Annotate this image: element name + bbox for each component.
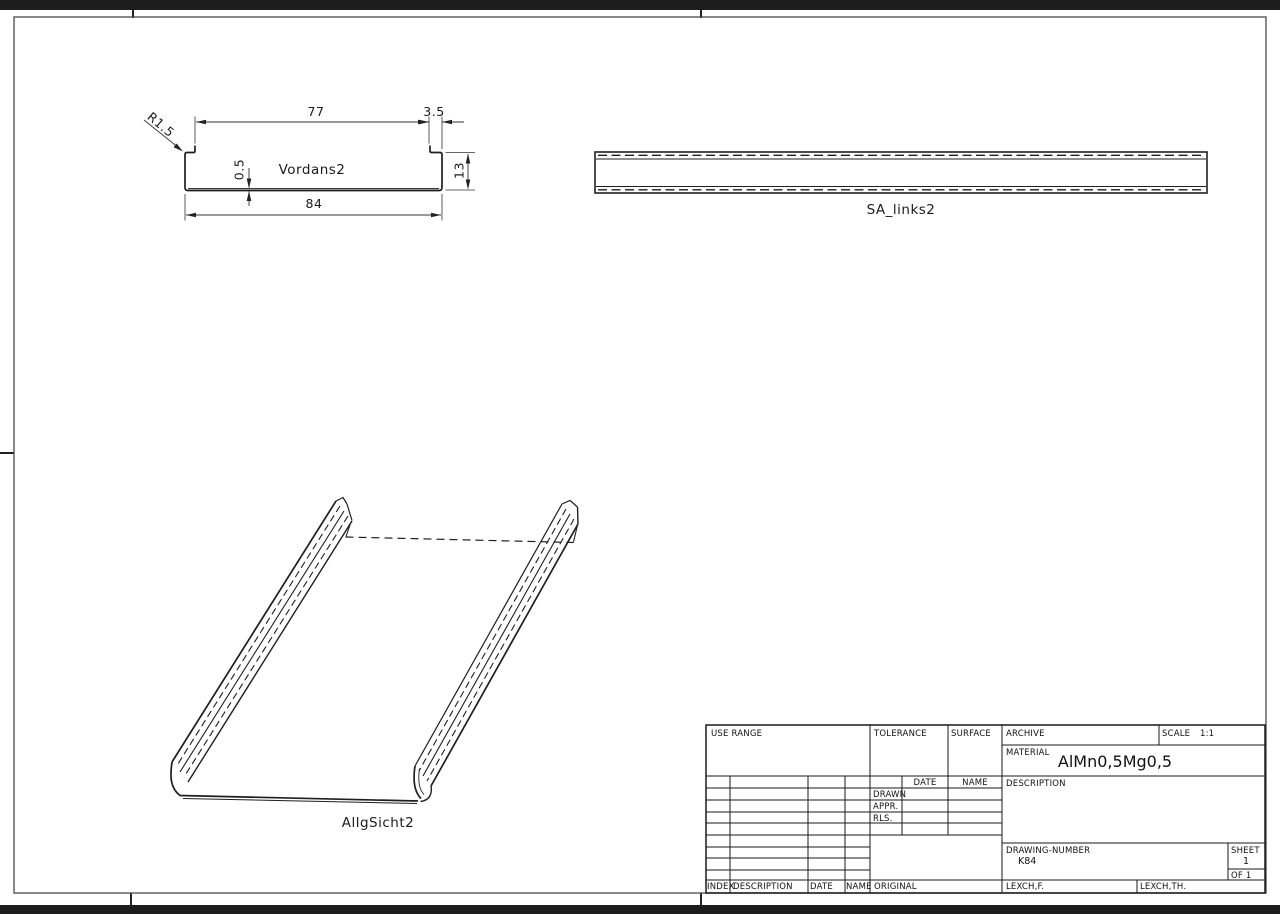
sheet-label: SHEET	[1231, 846, 1260, 856]
drawing-number-label: DRAWING-NUMBER	[1006, 846, 1090, 856]
drawing-sheet: 77 3.5 84 13 0.5 R1.5 Vordans2 SA_links2…	[0, 0, 1280, 914]
drawn-label: DRAWN	[873, 790, 906, 800]
archive-label: ARCHIVE	[1006, 729, 1045, 739]
lexch-f-label: LEXCH,F.	[1006, 882, 1044, 892]
dim-height: 13	[452, 151, 467, 191]
tolerance-label: TOLERANCE	[874, 729, 927, 739]
dim-lip-offset: 3.5	[414, 104, 454, 119]
surface-label: SURFACE	[951, 729, 991, 739]
dim-bottom-width: 84	[294, 196, 334, 211]
description-label: DESCRIPTION	[1006, 779, 1066, 789]
rev-name-header: NAME	[846, 882, 872, 892]
original-label: ORIGINAL	[874, 882, 917, 892]
scale-value: 1:1	[1200, 729, 1214, 739]
dim-top-width: 77	[296, 104, 336, 119]
rev-index-header: INDEX	[707, 882, 735, 892]
rev-date-header: DATE	[810, 882, 833, 892]
drawing-canvas	[0, 0, 1280, 914]
rev-description-header: DESCRIPTION	[733, 882, 793, 892]
side-view-linework	[595, 152, 1207, 193]
dim-thickness: 0.5	[232, 150, 247, 190]
title-block-grid	[706, 725, 1265, 893]
approved-label: APPR.	[873, 802, 898, 812]
lexch-th-label: LEXCH,TH.	[1140, 882, 1186, 892]
iso-view-linework	[171, 498, 578, 804]
sheet-of-value: OF 1	[1231, 871, 1252, 881]
signature-name-header: NAME	[948, 778, 1002, 788]
material-value: AlMn0,5Mg0,5	[1015, 752, 1215, 771]
section-view-label: Vordans2	[262, 162, 362, 178]
signature-date-header: DATE	[902, 778, 948, 788]
drawing-number-value: K84	[1018, 856, 1036, 867]
scale-label: SCALE	[1162, 729, 1190, 739]
sheet-value: 1	[1228, 856, 1264, 867]
side-view-label: SA_links2	[851, 202, 951, 218]
iso-view-label: AllgSicht2	[328, 815, 428, 831]
use-range-label: USE RANGE	[711, 729, 762, 739]
released-label: RLS.	[873, 814, 893, 824]
